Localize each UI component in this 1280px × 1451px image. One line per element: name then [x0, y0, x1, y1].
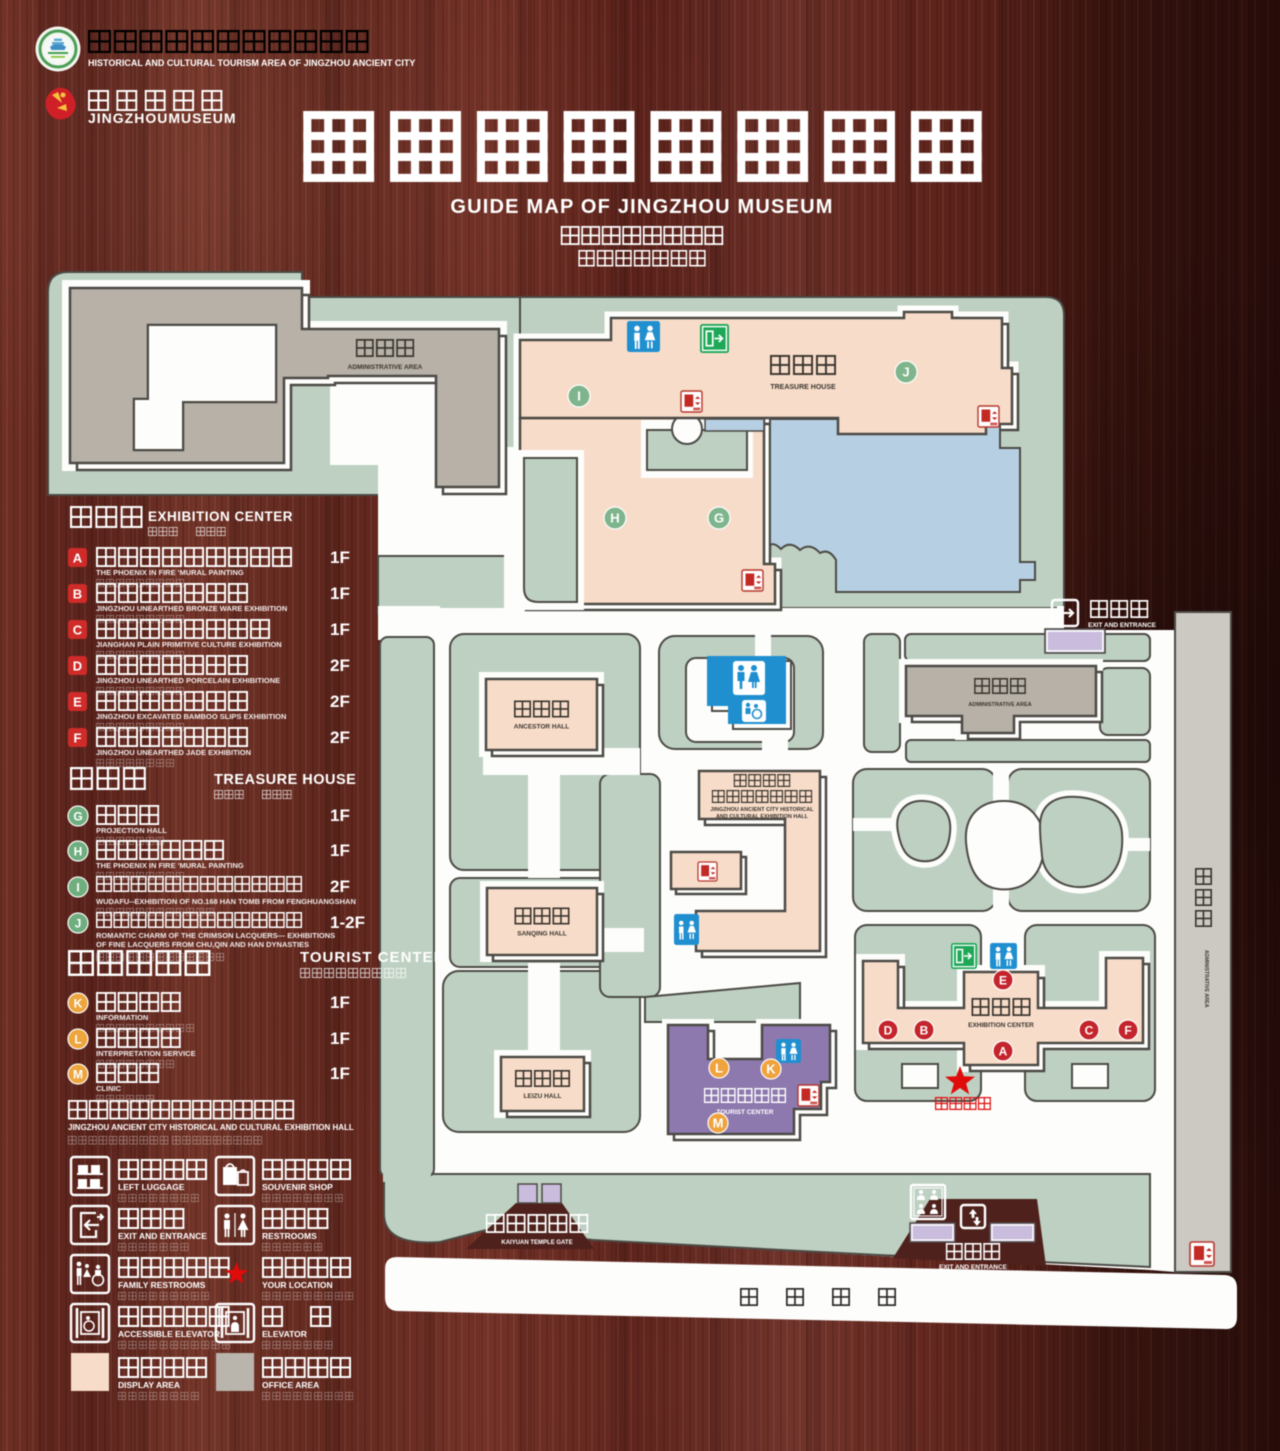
svg-text:JIANGHAN PLAIN PRIMITIVE CULTU: JIANGHAN PLAIN PRIMITIVE CULTURE EXHIBIT… — [96, 640, 282, 649]
svg-text:OFFICE AREA: OFFICE AREA — [262, 1380, 319, 1390]
svg-text:B: B — [73, 587, 82, 602]
svg-text:LEIZU HALL: LEIZU HALL — [524, 1093, 562, 1100]
svg-text:C: C — [1085, 1023, 1094, 1037]
svg-text:TOURIST CENTER: TOURIST CENTER — [300, 949, 445, 966]
svg-text:DISPLAY AREA: DISPLAY AREA — [118, 1380, 180, 1390]
svg-text:A: A — [73, 551, 83, 566]
svg-text:1F: 1F — [330, 1064, 350, 1083]
svg-text:JINGZHOU EXCAVATED BAMBOO SLIP: JINGZHOU EXCAVATED BAMBOO SLIPS EXHIBITI… — [96, 712, 286, 721]
svg-text:H: H — [74, 844, 83, 858]
svg-text:L: L — [74, 1032, 81, 1046]
svg-text:EXIT AND ENTRANCE: EXIT AND ENTRANCE — [1088, 622, 1157, 629]
svg-text:PROJECTION HALL: PROJECTION HALL — [96, 826, 167, 835]
svg-text:LEFT LUGGAGE: LEFT LUGGAGE — [118, 1182, 185, 1192]
svg-text:E: E — [73, 695, 82, 710]
svg-text:FAMILY RESTROOMS: FAMILY RESTROOMS — [118, 1280, 206, 1290]
svg-text:THE PHOENIX IN FIRE 'MURAL PAI: THE PHOENIX IN FIRE 'MURAL PAINTING — [96, 568, 244, 577]
svg-text:1F: 1F — [330, 1029, 350, 1048]
svg-text:JINGZHOU UNEARTHED PORCELAIN E: JINGZHOU UNEARTHED PORCELAIN EXHIBITIONE — [96, 676, 280, 685]
svg-text:I: I — [76, 880, 79, 894]
svg-text:OF FINE LACQUERS FROM CHU,QIN: OF FINE LACQUERS FROM CHU,QIN AND HAN DY… — [96, 940, 309, 949]
svg-text:B: B — [920, 1023, 929, 1037]
svg-text:1-2F: 1-2F — [330, 913, 365, 932]
svg-text:A: A — [999, 1044, 1008, 1058]
svg-text:EXIT AND ENTRANCE: EXIT AND ENTRANCE — [118, 1231, 207, 1241]
svg-text:JINGZHOU ANCIENT CITY HISTORIC: JINGZHOU ANCIENT CITY HISTORICAL AND CUL… — [68, 1123, 354, 1132]
svg-text:2F: 2F — [330, 877, 350, 896]
svg-text:CLINIC: CLINIC — [96, 1084, 122, 1093]
svg-text:M: M — [73, 1067, 83, 1081]
svg-text:M: M — [713, 1116, 724, 1131]
svg-text:C: C — [73, 623, 83, 638]
svg-text:JINGZHOUMUSEUM: JINGZHOUMUSEUM — [88, 110, 237, 126]
svg-text:TREASURE HOUSE: TREASURE HOUSE — [770, 384, 836, 391]
svg-text:ELEVATOR: ELEVATOR — [262, 1329, 307, 1339]
svg-text:L: L — [715, 1061, 723, 1076]
svg-text:1F: 1F — [330, 993, 350, 1012]
svg-text:G: G — [73, 809, 82, 823]
svg-text:F: F — [74, 731, 82, 746]
svg-text:2F: 2F — [330, 728, 350, 747]
svg-text:HISTORICAL AND CULTURAL TOURIS: HISTORICAL AND CULTURAL TOURISM AREA OF … — [88, 58, 415, 68]
svg-text:EXHIBITION CENTER: EXHIBITION CENTER — [148, 509, 293, 524]
svg-text:INTERPRETATION SERVICE: INTERPRETATION SERVICE — [96, 1049, 196, 1058]
svg-text:SOUVENIR SHOP: SOUVENIR SHOP — [262, 1182, 333, 1192]
svg-text:KAIYUAN TEMPLE GATE: KAIYUAN TEMPLE GATE — [501, 1240, 572, 1246]
svg-text:G: G — [714, 511, 724, 526]
svg-text:EXIT AND ENTRANCE: EXIT AND ENTRANCE — [939, 1264, 1008, 1271]
svg-text:1F: 1F — [330, 806, 350, 825]
svg-text:D: D — [73, 659, 82, 674]
svg-text:E: E — [999, 973, 1007, 987]
svg-text:1F: 1F — [330, 841, 350, 860]
svg-text:K: K — [74, 996, 83, 1010]
svg-text:JINGZHOU ANCIENT CITY HISTORIC: JINGZHOU ANCIENT CITY HISTORICAL — [710, 807, 814, 813]
svg-text:ADMINISTRATIVE AREA: ADMINISTRATIVE AREA — [348, 364, 423, 371]
svg-text:2F: 2F — [330, 692, 350, 711]
svg-text:JINGZHOU UNEARTHED BRONZE WARE: JINGZHOU UNEARTHED BRONZE WARE EXHIBITIO… — [96, 604, 287, 613]
svg-text:JINGZHOU UNEARTHED JADE EXHIBI: JINGZHOU UNEARTHED JADE EXHIBITION — [96, 748, 251, 757]
svg-text:2F: 2F — [330, 656, 350, 675]
svg-text:1F: 1F — [330, 548, 350, 567]
svg-text:I: I — [577, 389, 581, 404]
svg-text:H: H — [610, 511, 619, 526]
svg-text:YOUR LOCATION: YOUR LOCATION — [262, 1280, 333, 1290]
svg-text:ANCESTOR HALL: ANCESTOR HALL — [514, 724, 570, 731]
svg-text:1F: 1F — [330, 620, 350, 639]
svg-text:TREASURE HOUSE: TREASURE HOUSE — [214, 772, 356, 788]
svg-text:J: J — [902, 365, 909, 380]
svg-text:RESTROOMS: RESTROOMS — [262, 1231, 317, 1241]
svg-text:F: F — [1124, 1023, 1131, 1037]
svg-text:ADMINISTRATIVE AREA: ADMINISTRATIVE AREA — [1203, 950, 1209, 1008]
svg-text:TOURIST CENTER: TOURIST CENTER — [717, 1109, 774, 1116]
svg-text:D: D — [884, 1023, 893, 1037]
svg-text:ACCESSIBLE ELEVATOR: ACCESSIBLE ELEVATOR — [118, 1329, 220, 1339]
svg-text:THE PHOENIX IN FIRE 'MURAL PAI: THE PHOENIX IN FIRE 'MURAL PAINTING — [96, 861, 244, 870]
svg-text:GUIDE MAP OF JINGZHOU MUSEUM: GUIDE MAP OF JINGZHOU MUSEUM — [450, 196, 833, 218]
svg-text:INFORMATION: INFORMATION — [96, 1013, 148, 1022]
svg-text:EXHIBITION CENTER: EXHIBITION CENTER — [968, 1022, 1034, 1029]
svg-text:J: J — [75, 916, 82, 930]
svg-text:ROMANTIC CHARM OF THE CRIMSON: ROMANTIC CHARM OF THE CRIMSON LACQUERS--… — [96, 931, 335, 940]
svg-text:AND CULTURAL EXHIBITION HALL: AND CULTURAL EXHIBITION HALL — [716, 814, 809, 820]
svg-text:WUDAFU--EXHIBITION OF NO.168 H: WUDAFU--EXHIBITION OF NO.168 HAN TOMB FR… — [96, 897, 356, 906]
svg-text:1F: 1F — [330, 584, 350, 603]
svg-text:ADMINISTRATIVE AREA: ADMINISTRATIVE AREA — [968, 702, 1031, 708]
svg-text:K: K — [766, 1062, 776, 1077]
svg-text:SANQING HALL: SANQING HALL — [517, 931, 567, 938]
